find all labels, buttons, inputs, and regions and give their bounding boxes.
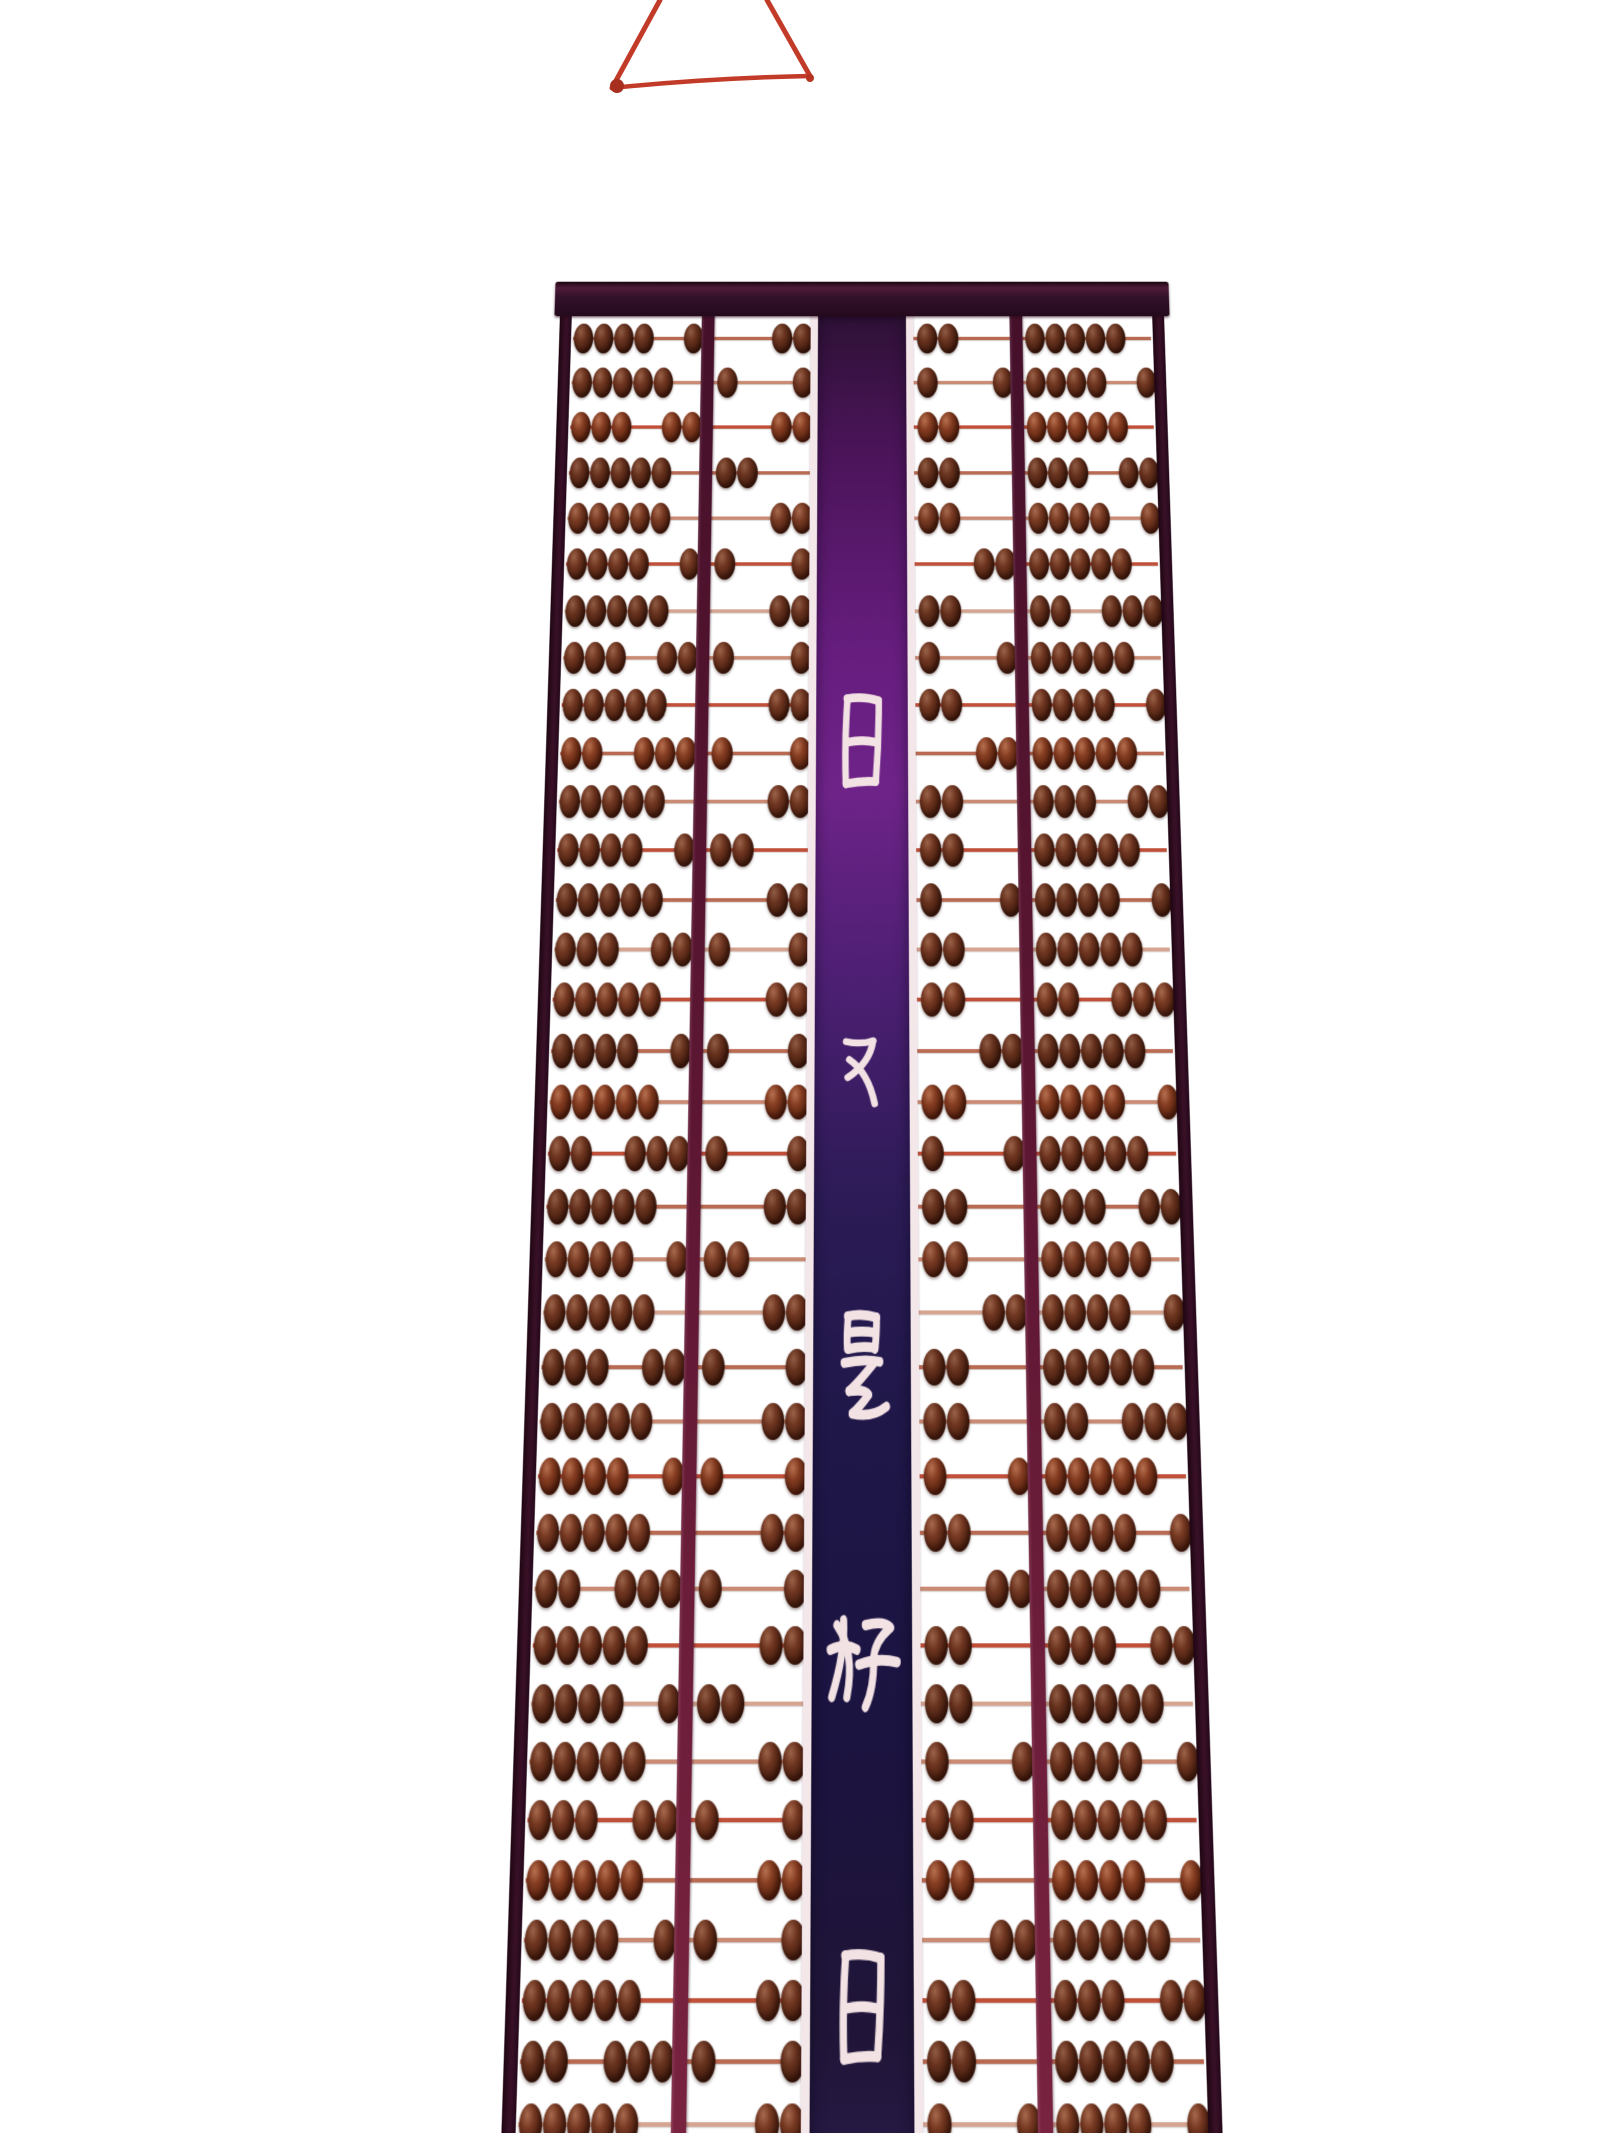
abacus-bead	[1094, 1684, 1117, 1723]
earth-right-section	[1043, 1560, 1196, 1617]
abacus-bead	[560, 737, 581, 769]
heaven-right-section	[913, 316, 1015, 360]
abacus-bead	[1075, 1860, 1098, 1900]
earth-left-section	[538, 1340, 688, 1394]
abacus-bead	[563, 642, 584, 674]
abacus-bead	[571, 1919, 595, 1960]
abacus-bead	[1126, 2041, 1150, 2083]
heaven-right-section	[915, 634, 1021, 681]
earth-right-section	[1046, 1732, 1202, 1791]
abacus-bead	[1042, 1348, 1064, 1385]
abacus-bead	[668, 1136, 690, 1171]
abacus-bead	[944, 1085, 966, 1120]
abacus-bead	[552, 1742, 575, 1782]
abacus-bead	[613, 323, 633, 353]
abacus-bead	[715, 457, 736, 488]
abacus-bead	[754, 2103, 778, 2133]
heaven-left-section	[710, 587, 815, 634]
heaven-left-section	[714, 316, 816, 360]
abacus-bead	[583, 689, 604, 721]
abacus-bead	[622, 785, 643, 818]
abacus-bead	[633, 737, 654, 769]
abacus-bead	[556, 1626, 579, 1665]
abacus-bead	[918, 595, 939, 627]
abacus-bead	[1034, 883, 1055, 916]
abacus-bead	[585, 595, 606, 627]
heaven-right-section	[921, 1791, 1040, 1850]
abacus-bead	[650, 2041, 674, 2083]
abacus-bead	[1113, 642, 1134, 674]
abacus-bead	[599, 1742, 622, 1782]
abacus-bead	[761, 1403, 784, 1440]
abacus-bead	[1053, 1980, 1076, 2021]
abacus-bead	[534, 1570, 557, 1608]
earth-right-section	[1024, 450, 1161, 495]
abacus-bead	[951, 2041, 975, 2083]
abacus-bead	[637, 1085, 659, 1120]
abacus-bead	[567, 1241, 589, 1277]
abacus-bead	[1090, 549, 1111, 580]
abacus-bead	[1103, 2103, 1127, 2133]
abacus-bead	[625, 689, 646, 721]
earth-right-section	[1033, 924, 1177, 974]
abacus-bead	[1026, 412, 1046, 442]
abacus-bead	[1028, 503, 1048, 534]
abacus-bead	[520, 2041, 544, 2083]
abacus-bead	[587, 549, 608, 580]
abacus-bead	[531, 1684, 554, 1723]
earth-left-section	[535, 1449, 687, 1504]
abacus-bead	[574, 983, 596, 1017]
abacus-bead	[625, 1626, 648, 1665]
abacus-bead	[1072, 642, 1093, 674]
abacus-bead	[1056, 883, 1077, 916]
abacus-bead	[926, 2041, 950, 2083]
earth-right-section	[1035, 1076, 1181, 1128]
abacus-bead	[691, 2041, 715, 2083]
abacus-bead	[973, 549, 994, 580]
earth-right-section	[1031, 826, 1173, 875]
abacus-bead	[1093, 1626, 1116, 1665]
abacus-bead	[1054, 2041, 1078, 2083]
earth-right-section	[1033, 975, 1178, 1026]
abacus-bead	[1105, 323, 1125, 353]
abacus-bead	[564, 1348, 586, 1385]
abacus-bead	[1101, 595, 1122, 627]
abacus-bead	[917, 368, 937, 398]
heaven-left-section	[686, 2093, 808, 2133]
cord-left-strand	[612, 0, 660, 88]
abacus-bead	[1116, 737, 1137, 769]
heaven-right-section	[914, 541, 1019, 587]
abacus-bead	[1121, 1403, 1143, 1440]
heaven-right-section	[915, 587, 1020, 634]
heaven-left-section	[691, 1732, 809, 1791]
abacus-bead	[1092, 1570, 1115, 1608]
earth-left-section	[532, 1560, 685, 1617]
abacus-bead	[1101, 1980, 1125, 2021]
earth-left-section	[545, 1128, 692, 1180]
earth-right-section	[1032, 875, 1175, 925]
abacus-bead	[943, 983, 965, 1017]
abacus-bead	[726, 1241, 749, 1277]
heaven-right-section	[917, 1025, 1027, 1076]
abacus-bead	[1120, 1800, 1143, 1840]
abacus-bead	[609, 503, 629, 534]
earth-left-section	[519, 1970, 678, 2031]
abacus-bead	[1064, 1295, 1086, 1331]
abacus-bead	[1069, 1570, 1092, 1608]
abacus-bead	[1084, 1188, 1106, 1224]
abacus-bead	[570, 1136, 592, 1171]
earth-left-section	[561, 634, 701, 681]
abacus-bead	[1052, 689, 1073, 721]
cord-right-strand	[767, 0, 810, 76]
abacus-bead	[917, 457, 938, 488]
abacus-bead	[650, 933, 671, 967]
abacus-bead	[924, 1626, 947, 1665]
abacus-bead	[632, 1800, 655, 1840]
heaven-left-section	[695, 1504, 810, 1560]
abacus-bead	[580, 785, 601, 818]
abacus-bead	[1085, 323, 1105, 353]
abacus-bead	[577, 883, 598, 916]
earth-right-section	[1038, 1233, 1186, 1286]
earth-right-section	[1044, 1617, 1198, 1674]
abacus-bead	[589, 1241, 611, 1277]
heaven-left-section	[711, 495, 815, 541]
abacus-bead	[670, 1033, 691, 1067]
abacus-bead	[653, 368, 673, 398]
abacus-bead	[1049, 1742, 1072, 1782]
abacus-bead	[646, 689, 667, 721]
abacus-bead	[923, 1458, 946, 1495]
abacus-bead	[542, 2103, 566, 2133]
abacus-bead	[614, 1570, 637, 1608]
abacus-bead	[950, 1860, 974, 1900]
abacus-bead	[1097, 1800, 1120, 1840]
abacus-bead	[1055, 2103, 1079, 2133]
earth-left-section	[517, 2031, 677, 2093]
earth-left-section	[556, 777, 698, 826]
abacus-bead	[1135, 1458, 1158, 1495]
abacus-bead	[650, 503, 670, 534]
abacus-bead	[573, 1033, 595, 1067]
abacus-bead	[938, 412, 959, 442]
abacus-bead	[672, 933, 693, 967]
abacus-bead	[1122, 595, 1143, 627]
abacus-bead	[529, 1742, 552, 1782]
abacus-bead	[655, 1800, 678, 1840]
abacus-bead	[1096, 1742, 1119, 1782]
abacus-bead	[592, 368, 612, 398]
abacus-bead	[1050, 1800, 1073, 1840]
abacus-bead	[1150, 2041, 1174, 2083]
abacus-bead	[989, 1919, 1013, 1960]
abacus-bead	[596, 1860, 619, 1900]
abacus-bead	[923, 1513, 946, 1551]
abacus-bead	[1068, 1513, 1090, 1551]
abacus-bead	[1091, 1513, 1114, 1551]
abacus-bead	[947, 1513, 970, 1551]
abacus-bead	[979, 1033, 1001, 1067]
abacus-bead	[712, 642, 733, 674]
earth-left-section	[537, 1394, 688, 1449]
abacus-bead	[545, 1241, 567, 1277]
abacus-bead	[607, 549, 628, 580]
abacus-bead	[579, 1626, 602, 1665]
abacus-bead	[985, 1570, 1008, 1608]
abacus-bead	[946, 1403, 969, 1440]
abacus-bead	[1029, 595, 1049, 627]
abacus-bead	[585, 1403, 607, 1440]
abacus-bead	[946, 1348, 969, 1385]
abacus-bead	[1047, 1626, 1070, 1665]
abacus-bead	[760, 1513, 783, 1551]
abacus-bead	[1097, 834, 1118, 867]
heaven-right-section	[919, 1286, 1032, 1340]
abacus-bead	[566, 2103, 590, 2133]
abacus-bead	[1132, 983, 1154, 1017]
abacus-bead	[945, 1241, 967, 1277]
heaven-left-section	[692, 1674, 809, 1732]
abacus-bead	[918, 642, 939, 674]
abacus-bead	[1118, 834, 1139, 867]
heaven-left-section	[713, 405, 816, 450]
heaven-right-section	[920, 1504, 1035, 1560]
earth-left-section	[551, 924, 695, 974]
abacus-bead	[1046, 368, 1066, 398]
heaven-left-section	[699, 1233, 811, 1286]
abacus-bead	[562, 689, 583, 721]
heaven-right-section	[914, 495, 1018, 541]
abacus-bead	[617, 1980, 641, 2021]
heaven-left-section	[698, 1340, 812, 1394]
abacus-bead	[570, 412, 590, 442]
abacus-bead	[1098, 883, 1119, 916]
abacus-bead	[603, 2041, 627, 2083]
cord-horizontal-strand	[612, 76, 810, 88]
abacus-bead	[919, 834, 941, 867]
abacus-bead	[1040, 1188, 1062, 1224]
abacus-bead	[1060, 1085, 1082, 1120]
earth-left-section	[553, 875, 696, 925]
heaven-left-section	[713, 360, 816, 405]
abacus-bead	[941, 785, 962, 818]
abacus-bead	[1085, 1241, 1107, 1277]
abacus-bead	[703, 1241, 726, 1277]
abacus-bead	[551, 1033, 573, 1067]
abacus-bead	[557, 1570, 580, 1608]
heaven-right-section	[920, 1617, 1037, 1674]
abacus-bead	[1159, 1980, 1183, 2021]
abacus-bead	[1119, 1742, 1142, 1782]
abacus-bead	[577, 1684, 600, 1723]
abacus-bead	[1055, 834, 1076, 867]
abacus-bead	[1082, 1136, 1104, 1171]
abacus-bead	[1066, 368, 1086, 398]
abacus-bead	[1062, 1188, 1084, 1224]
abacus-bead	[711, 737, 733, 769]
earth-left-section	[543, 1180, 691, 1233]
abacus-bead	[1138, 1188, 1160, 1224]
earth-left-section	[566, 450, 703, 495]
heaven-right-section	[919, 1394, 1033, 1449]
abacus-bead	[1102, 1033, 1124, 1067]
earth-right-section	[1041, 1394, 1192, 1449]
abacus-bead	[1045, 323, 1065, 353]
abacus-bead	[770, 503, 791, 534]
abacus-bead	[627, 595, 648, 627]
abacus-bead	[1048, 1684, 1071, 1723]
abacus-bead	[1033, 785, 1054, 818]
abacus-bead	[522, 1980, 546, 2021]
abacus-bead	[653, 1919, 676, 1960]
heaven-right-section	[917, 975, 1027, 1026]
abacus-bead	[648, 595, 668, 627]
abacus-bead	[1117, 1684, 1140, 1723]
abacus-bead	[556, 883, 577, 916]
earth-left-section	[533, 1504, 685, 1560]
calligraphy-character-5	[819, 1946, 906, 2072]
earth-right-section	[1037, 1180, 1185, 1233]
heaven-left-section	[702, 1076, 813, 1128]
heaven-right-section	[918, 1128, 1029, 1180]
abacus-bead	[1111, 983, 1133, 1017]
abacus-bead	[620, 1860, 643, 1900]
abacus-bead	[1039, 1136, 1061, 1171]
abacus-bead	[626, 2041, 650, 2083]
abacus-bead	[763, 1188, 785, 1224]
abacus-bead	[1124, 1033, 1146, 1067]
abacus-bead	[922, 1188, 944, 1224]
abacus-bead	[616, 1033, 638, 1067]
abacus-bead	[920, 933, 942, 967]
abacus-bead	[641, 1348, 663, 1385]
abacus-bead	[557, 834, 578, 867]
abacus-bead	[683, 323, 703, 353]
abacus-bead	[757, 1860, 781, 1900]
heaven-right-section	[922, 1850, 1041, 1910]
abacus-bead	[588, 503, 608, 534]
abacus-bead	[1063, 1241, 1085, 1277]
abacus-bead	[925, 1860, 949, 1900]
hanging-cord	[0, 0, 1600, 200]
abacus-bead	[1129, 1241, 1151, 1277]
abacus-bead	[593, 323, 613, 353]
abacus-bead	[646, 1136, 668, 1171]
abacus-bead	[629, 503, 649, 534]
abacus-bead	[1122, 1860, 1145, 1900]
earth-left-section	[524, 1791, 680, 1850]
abacus-bead	[637, 1570, 660, 1608]
earth-right-section	[1022, 316, 1157, 360]
calligraphy-character-4	[820, 1608, 904, 1732]
abacus-bead	[679, 549, 699, 580]
abacus-bead	[1076, 834, 1097, 867]
abacus-bead	[1098, 1860, 1121, 1900]
abacus-bead	[599, 883, 620, 916]
abacus-bead	[758, 1742, 782, 1782]
abacus-bead	[538, 1458, 561, 1495]
abacus-bead	[701, 1348, 724, 1385]
heaven-left-section	[703, 975, 813, 1026]
abacus-bead	[694, 1800, 718, 1840]
abacus-bead	[654, 737, 675, 769]
abacus-bead	[1147, 1919, 1171, 1960]
abacus-bead	[615, 1085, 637, 1120]
abacus-bead	[762, 1295, 785, 1331]
abacus-bead	[1057, 933, 1078, 967]
heaven-left-section	[701, 1128, 812, 1180]
abacus-bead	[562, 1403, 585, 1440]
abacus-bead	[1104, 1136, 1126, 1171]
abacus-bead	[618, 983, 639, 1017]
heaven-left-section	[687, 2031, 808, 2093]
abacus-bead	[921, 1085, 943, 1120]
abacus-bead	[574, 1800, 597, 1840]
abacus-bead	[1029, 549, 1049, 580]
heaven-right-section	[914, 450, 1018, 495]
abacus-bead	[526, 1860, 550, 1900]
abacus-bead	[1032, 737, 1053, 769]
earth-right-section	[1047, 1791, 1204, 1850]
abacus-bead	[942, 933, 964, 967]
abacus-bead	[628, 549, 648, 580]
heaven-left-section	[710, 541, 815, 587]
abacus-bead	[1025, 323, 1045, 353]
heaven-right-section	[918, 1233, 1030, 1286]
abacus-bead	[559, 785, 580, 818]
abacus-bead	[919, 689, 940, 721]
abacus-bead	[1054, 785, 1075, 818]
heaven-left-section	[707, 777, 814, 826]
abacus-bead	[720, 1684, 744, 1723]
heaven-left-section	[705, 875, 813, 925]
abacus-bead	[1087, 1348, 1109, 1385]
abacus-bead	[590, 1188, 612, 1224]
abacus-bead	[769, 595, 790, 627]
abacus-bead	[717, 368, 738, 398]
abacus-bead	[559, 1513, 582, 1551]
abacus-bead	[1043, 1403, 1065, 1440]
abacus-bead	[709, 834, 731, 867]
heaven-right-section	[917, 1076, 1028, 1128]
abacus-bead	[1038, 1085, 1059, 1120]
earth-left-section	[550, 975, 695, 1026]
earth-left-section	[565, 495, 703, 541]
earth-right-section	[1025, 495, 1163, 541]
abacus-bead	[940, 595, 961, 627]
abacus-bead	[1059, 1033, 1080, 1067]
abacus-bead	[1118, 457, 1138, 488]
calligraphy-character-2	[822, 1032, 901, 1114]
abacus-bead	[601, 785, 622, 818]
abacus-bead	[1058, 983, 1079, 1017]
abacus-bead	[951, 1980, 975, 2021]
abacus-bead	[1138, 1570, 1161, 1608]
heaven-left-section	[689, 1910, 809, 1970]
abacus-bead	[1045, 1513, 1067, 1551]
abacus-bead	[589, 457, 609, 488]
earth-right-section	[1050, 1970, 1209, 2031]
heaven-left-section	[690, 1850, 809, 1910]
abacus-bead	[1121, 933, 1142, 967]
abacus-bead	[1044, 1458, 1066, 1495]
abacus-bead	[661, 412, 681, 442]
abacus-bead	[1132, 1348, 1154, 1385]
abacus-bead	[938, 323, 958, 353]
